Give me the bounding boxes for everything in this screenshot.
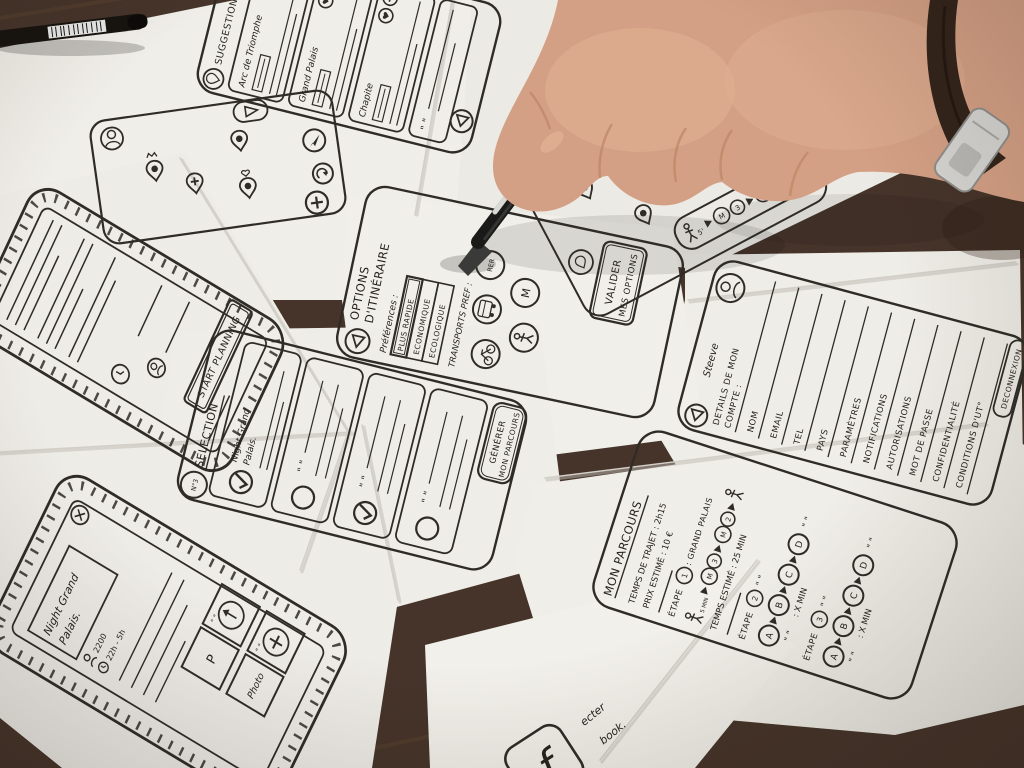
placeholder-lines <box>7 220 124 362</box>
person-icon <box>82 652 97 667</box>
arrow-right-icon <box>727 502 737 511</box>
route-step: M <box>759 190 768 200</box>
photo-of-wireframe-sketches: SUGGESTIONS Arc de Triomphe Grand Palais <box>0 0 1024 768</box>
arrow-right-icon <box>700 585 710 594</box>
locate-pin <box>186 172 205 194</box>
poi-name: Arc de Triomphe <box>237 14 265 90</box>
badge-label: N°3 <box>189 478 200 492</box>
step-badge: N°3 <box>178 469 210 501</box>
step-label: ÉTAPE <box>665 587 685 618</box>
rer-train-icon: RER <box>474 248 507 281</box>
arrow-right-icon <box>854 575 864 584</box>
photo-label: Photo <box>246 671 267 701</box>
person-icon <box>145 355 168 381</box>
metro-letter: M <box>719 531 728 539</box>
ditto-marks: " " <box>358 475 372 490</box>
profile-icon <box>713 271 747 305</box>
ditto-marks: " " <box>296 459 310 474</box>
step-number: 1 <box>680 572 690 580</box>
line-number: 2 <box>724 516 733 523</box>
back-icon <box>683 402 710 429</box>
ditto-marks: " " <box>848 651 861 665</box>
checkbox-checked-icon <box>228 469 255 496</box>
ditto-marks: " " <box>783 630 796 644</box>
line-number: 3 <box>711 558 720 565</box>
walk-icon <box>682 222 698 242</box>
step-duration: : X MIN <box>791 587 810 619</box>
step-number: 2 <box>750 595 760 603</box>
pin-icon <box>201 67 225 91</box>
menu-row: PAYS <box>815 428 830 452</box>
ditto-marks: " " <box>420 490 434 505</box>
rer-label: RER <box>486 258 497 273</box>
walk-icon <box>507 321 540 354</box>
arrow-right-icon <box>834 636 844 645</box>
walk-icon <box>725 487 744 500</box>
route-step: 3 <box>734 204 742 213</box>
menu-row: NOM <box>746 410 761 434</box>
map-pin <box>230 130 249 152</box>
return-arrow-icon <box>312 162 335 185</box>
metro-letter: M <box>706 572 715 580</box>
stop-letter: C <box>784 571 795 580</box>
crown-map-pin <box>144 152 164 182</box>
stop-letter: D <box>859 561 871 571</box>
ditto-marks: " " <box>820 595 833 609</box>
metro-icon: M <box>509 276 542 309</box>
arrow-right-icon <box>844 606 854 615</box>
parking-tile: P <box>182 627 239 689</box>
stop-letter: C <box>849 592 860 601</box>
capacity-value: 2200 <box>92 632 109 655</box>
ditto-marks: " " <box>419 117 433 132</box>
opening-hours: 22h - 5h <box>105 628 127 663</box>
zoom-in-icon <box>304 190 329 215</box>
arrow-right-icon <box>745 195 755 205</box>
caption-fragment: ecter <box>578 700 609 729</box>
share-tile: " " <box>203 584 260 646</box>
map-pin <box>632 202 656 227</box>
stop-letter: B <box>839 622 850 631</box>
caption-fragment: book. <box>597 718 629 747</box>
heart-map-pin <box>238 169 258 199</box>
step-label: ÉTAPE <box>736 610 756 641</box>
profile-icon <box>100 126 125 151</box>
checkbox-empty-icon <box>414 515 441 542</box>
arrow-right-icon <box>704 217 714 227</box>
bus-icon <box>470 293 503 326</box>
step-duration: : X MIN <box>856 608 875 640</box>
parking-label: P <box>204 652 220 667</box>
clock-icon <box>97 660 110 674</box>
stop-letter: D <box>794 540 806 550</box>
route-step-3: ÉTAPE 3 " " A B C D " " " " : X MIN <box>798 527 896 675</box>
checkbox-empty-icon <box>290 484 317 511</box>
selection-card: " " <box>332 372 427 539</box>
ditto-marks: " " <box>755 574 768 588</box>
arrow-right-icon <box>789 554 799 563</box>
walk-time: 5 MIN <box>700 597 711 614</box>
list-item: Chapite <box>348 0 436 133</box>
user-name: Steeve <box>702 342 722 378</box>
route-step-2: ÉTAPE 2 " " A B C D " " " " : X MIN <box>734 506 832 654</box>
stop-letter: A <box>829 652 841 662</box>
validate-options-button: VALIDER MES OPTIONS <box>589 240 648 325</box>
selection-card: " " <box>270 357 365 524</box>
list-item: " " <box>408 0 479 144</box>
selection-card: " " <box>394 388 489 555</box>
menu-row: AUTORISATIONS <box>885 395 914 471</box>
photo-tile: Photo <box>226 654 283 716</box>
route-step: M <box>718 212 727 222</box>
placeholder-lines <box>119 573 208 703</box>
bike-icon <box>469 337 502 370</box>
placeholder-lines <box>429 10 463 111</box>
add-tile: " " <box>247 611 304 673</box>
clock-icon <box>109 361 132 387</box>
step-number: 3 <box>815 616 825 624</box>
menu-row: TEL <box>792 427 806 447</box>
metro-letter: M <box>519 287 534 299</box>
heart-map-pin <box>570 170 597 202</box>
selection-card: Night Grand Palais. <box>208 341 303 508</box>
stop-letter: A <box>765 631 777 641</box>
step-label: ÉTAPE <box>800 631 820 662</box>
back-icon <box>343 327 371 355</box>
poi-name: Chapite <box>358 82 376 119</box>
arrow-right-icon <box>779 585 789 594</box>
facebook-logo: f <box>500 720 589 768</box>
stop-letter: B <box>774 601 785 610</box>
ditto-marks: " " <box>866 537 879 551</box>
route-step: 2 <box>776 181 784 190</box>
checkbox-checked-icon <box>352 500 379 527</box>
navigate-arrow-icon <box>302 128 327 153</box>
walk-icon <box>684 611 703 624</box>
arrow-right-icon <box>714 544 724 553</box>
walk-time: 5' <box>696 227 705 237</box>
screen-title: SUGGESTIONS <box>213 0 242 66</box>
arrow-right-icon <box>769 615 779 624</box>
ditto-marks: " " <box>801 516 814 530</box>
menu-row: PARAMÈTRES <box>837 396 864 458</box>
